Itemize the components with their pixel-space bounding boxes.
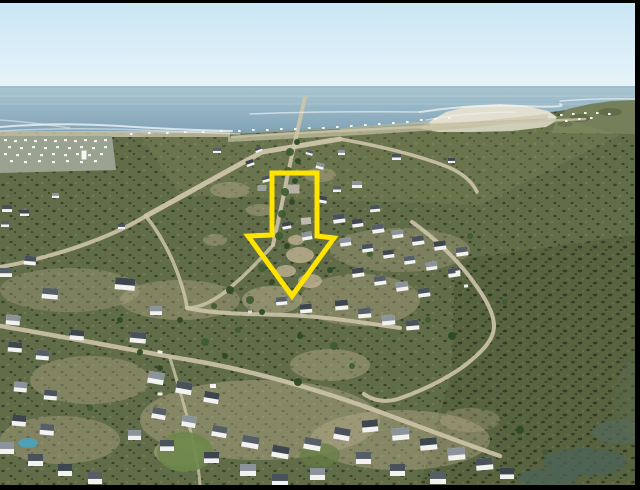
distant-house xyxy=(52,153,55,155)
distant-house xyxy=(40,154,43,156)
house xyxy=(160,440,174,451)
distant-house xyxy=(4,153,7,155)
house xyxy=(333,186,341,192)
house-roof xyxy=(390,464,405,471)
house xyxy=(425,261,437,270)
house xyxy=(272,474,288,486)
house xyxy=(14,381,28,392)
distant-house xyxy=(280,128,283,130)
house xyxy=(500,468,514,479)
distant-house xyxy=(350,125,353,127)
house-roof xyxy=(88,472,102,479)
tree xyxy=(258,264,266,272)
house xyxy=(128,430,141,440)
house-roof xyxy=(20,210,29,213)
frame-right xyxy=(635,0,640,490)
house xyxy=(382,314,396,325)
tree xyxy=(275,232,283,240)
aerial-photo xyxy=(0,0,640,490)
house xyxy=(70,329,85,340)
distant-house xyxy=(10,160,13,162)
house-roof xyxy=(382,314,395,321)
house-roof xyxy=(392,427,410,435)
house xyxy=(338,150,345,155)
tree xyxy=(502,299,508,305)
tree xyxy=(286,148,294,156)
tree xyxy=(201,338,209,346)
house xyxy=(44,389,58,400)
distant-house xyxy=(76,153,79,155)
tree xyxy=(87,405,93,411)
house-roof xyxy=(36,349,49,356)
distant-house xyxy=(16,154,19,156)
house-roof xyxy=(420,437,438,445)
distant-house xyxy=(130,133,133,135)
house xyxy=(0,268,12,277)
house xyxy=(28,454,43,466)
distant-house xyxy=(565,120,568,122)
house-roof xyxy=(476,457,494,465)
house xyxy=(276,297,288,306)
distant-house xyxy=(14,140,17,142)
vehicle xyxy=(158,393,163,396)
house xyxy=(382,249,394,258)
house-roof xyxy=(333,186,341,189)
aerial-photo-screenshot xyxy=(0,0,640,490)
distant-house xyxy=(336,126,339,128)
house xyxy=(8,341,23,352)
house xyxy=(430,472,446,484)
house xyxy=(12,414,27,426)
house xyxy=(361,243,373,252)
distant-house xyxy=(52,161,55,163)
tree xyxy=(289,199,295,205)
house xyxy=(371,223,384,234)
house xyxy=(52,193,59,198)
house xyxy=(20,210,29,216)
house-roof xyxy=(1,221,9,224)
house xyxy=(433,240,446,251)
vehicle xyxy=(248,311,252,314)
distant-house xyxy=(66,160,69,162)
distant-house xyxy=(56,146,59,148)
vehicle xyxy=(464,284,468,288)
house xyxy=(352,181,362,188)
tree xyxy=(117,317,123,323)
house xyxy=(300,303,313,313)
house xyxy=(403,255,415,264)
house xyxy=(88,472,102,484)
outbuilding xyxy=(301,217,312,225)
distant-house xyxy=(68,147,71,149)
tree xyxy=(467,233,473,239)
tree xyxy=(211,303,217,309)
tree xyxy=(235,327,241,333)
distant-house xyxy=(104,139,107,141)
house-roof xyxy=(150,306,162,311)
distant-house xyxy=(378,123,381,125)
house-roof xyxy=(118,224,125,227)
house xyxy=(391,229,403,238)
house-roof xyxy=(362,419,379,427)
distant-house xyxy=(420,119,423,121)
house xyxy=(339,237,351,246)
house-roof xyxy=(44,389,57,396)
distant-house xyxy=(44,139,47,141)
distant-house xyxy=(44,147,47,149)
house-roof xyxy=(448,158,455,161)
distant-house xyxy=(8,146,11,148)
tree xyxy=(269,279,275,285)
house-roof xyxy=(430,472,446,479)
house xyxy=(1,221,9,227)
house-roof xyxy=(70,329,84,336)
house xyxy=(58,464,72,476)
house xyxy=(411,235,424,246)
house-roof xyxy=(0,268,12,273)
house-roof xyxy=(335,299,348,306)
house-roof xyxy=(128,430,141,436)
tree xyxy=(278,210,286,218)
tree xyxy=(284,243,290,249)
house-roof xyxy=(406,319,419,326)
distant-house xyxy=(104,146,107,148)
house xyxy=(395,281,408,292)
house xyxy=(332,213,345,224)
tree xyxy=(157,365,163,371)
sand-patch xyxy=(203,234,227,246)
distant-house xyxy=(238,130,241,132)
house xyxy=(0,442,14,454)
distant-house xyxy=(24,161,27,163)
house-roof xyxy=(58,464,72,471)
house-roof xyxy=(0,442,14,449)
distant-house xyxy=(584,112,587,114)
tree xyxy=(542,449,548,455)
house-roof xyxy=(272,474,288,481)
house-roof xyxy=(370,205,380,210)
distant-house xyxy=(448,117,451,119)
house xyxy=(420,437,438,450)
house xyxy=(335,299,349,310)
distant-house xyxy=(266,129,269,131)
house-roof xyxy=(213,148,221,151)
house-roof xyxy=(338,150,345,153)
house-roof xyxy=(14,381,27,388)
sand-patch xyxy=(290,349,370,381)
house-roof xyxy=(276,297,287,303)
distant-house xyxy=(294,128,297,130)
house xyxy=(448,447,466,460)
house xyxy=(130,331,147,343)
distant-house xyxy=(322,127,325,129)
tree xyxy=(259,309,265,315)
distant-house xyxy=(94,140,97,142)
house-roof xyxy=(310,468,325,475)
house-roof xyxy=(500,468,514,474)
distant-house xyxy=(64,139,67,141)
house xyxy=(150,306,162,315)
house-roof xyxy=(28,454,43,461)
distant-house xyxy=(148,132,151,134)
distant-house xyxy=(64,154,67,156)
tree xyxy=(226,286,234,294)
house xyxy=(448,158,455,163)
house xyxy=(356,452,371,464)
house xyxy=(476,457,494,470)
distant-house xyxy=(92,147,95,149)
house-roof xyxy=(6,314,20,321)
house xyxy=(392,427,410,440)
tree xyxy=(294,378,302,386)
vehicle xyxy=(210,384,216,388)
tree xyxy=(516,426,524,434)
tree xyxy=(448,332,456,340)
house xyxy=(240,464,256,476)
house xyxy=(301,231,312,241)
house xyxy=(204,452,219,463)
house xyxy=(370,205,381,213)
house xyxy=(390,464,405,476)
house xyxy=(362,419,379,432)
tree xyxy=(292,178,298,184)
house xyxy=(118,224,125,229)
tree xyxy=(327,267,333,273)
sand-patch xyxy=(210,182,250,198)
house xyxy=(40,423,55,435)
house xyxy=(6,314,21,325)
tree xyxy=(295,158,301,164)
house xyxy=(36,349,50,360)
tree xyxy=(349,363,355,369)
tree xyxy=(177,317,183,323)
distant-house xyxy=(80,161,83,163)
frame-top xyxy=(0,0,640,3)
distant-house xyxy=(80,146,83,148)
tree xyxy=(294,139,300,145)
distant-house xyxy=(94,160,97,162)
house xyxy=(310,468,325,480)
house-roof xyxy=(448,447,466,455)
distant-house xyxy=(406,121,409,123)
distant-house xyxy=(24,139,27,141)
sand-patch xyxy=(0,268,140,312)
house xyxy=(358,307,372,318)
tree xyxy=(281,188,289,196)
house xyxy=(455,246,468,257)
distant-house xyxy=(100,153,103,155)
house xyxy=(2,205,12,212)
distant-house xyxy=(392,122,395,124)
house-roof xyxy=(392,154,401,157)
tree xyxy=(425,317,431,323)
house-roof xyxy=(356,452,371,459)
distant-house xyxy=(590,117,593,119)
distant-house xyxy=(4,139,7,141)
sand-patch xyxy=(288,235,304,245)
outbuilding xyxy=(258,185,267,191)
house-roof xyxy=(358,307,371,314)
distant-house xyxy=(308,127,311,129)
distant-house xyxy=(84,139,87,141)
distant-house xyxy=(34,140,37,142)
distant-house xyxy=(74,140,77,142)
house-roof xyxy=(40,423,55,431)
house xyxy=(392,154,401,160)
house-roof xyxy=(52,193,59,196)
tree xyxy=(246,296,254,304)
house-roof xyxy=(24,255,36,261)
frame-bottom xyxy=(0,485,640,490)
house xyxy=(373,275,386,286)
house-roof xyxy=(2,205,12,209)
house-roof xyxy=(352,181,362,185)
house-roof xyxy=(8,341,22,348)
distant-house xyxy=(88,154,91,156)
house xyxy=(115,277,136,291)
distant-house xyxy=(28,153,31,155)
house-roof xyxy=(240,464,256,471)
distant-house xyxy=(608,113,611,115)
house xyxy=(24,255,37,265)
sand-patch xyxy=(440,408,500,432)
house-roof xyxy=(160,440,174,446)
outbuilding xyxy=(82,151,87,160)
sand-patch xyxy=(286,247,314,263)
house xyxy=(417,287,430,298)
distant-house xyxy=(20,147,23,149)
distant-house xyxy=(166,132,169,134)
sky xyxy=(0,0,640,92)
distant-house xyxy=(560,114,563,116)
tree xyxy=(222,353,228,359)
distant-house xyxy=(578,118,581,120)
house-roof xyxy=(204,452,219,458)
distant-house xyxy=(364,124,367,126)
tree xyxy=(137,349,143,355)
house-roof xyxy=(12,414,27,422)
tree xyxy=(330,342,338,350)
distant-house xyxy=(32,146,35,148)
distant-house xyxy=(54,140,57,142)
house xyxy=(351,267,364,278)
house xyxy=(351,218,363,227)
house xyxy=(213,148,221,153)
distant-house xyxy=(38,160,41,162)
distant-house xyxy=(596,112,599,114)
house xyxy=(42,287,59,299)
tree xyxy=(297,333,303,339)
distant-house xyxy=(252,129,255,131)
distant-house xyxy=(572,113,575,115)
house-roof xyxy=(300,303,312,309)
house xyxy=(406,319,420,330)
water-patch xyxy=(18,438,38,448)
water-patch xyxy=(518,469,578,487)
